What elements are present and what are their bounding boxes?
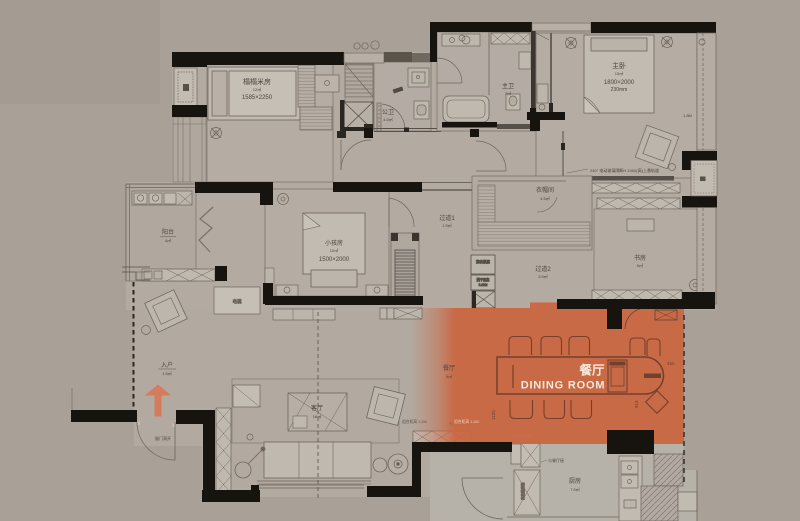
svg-text:烘干机高: 烘干机高 bbox=[477, 277, 490, 282]
svg-text:餐厅: 餐厅 bbox=[578, 363, 605, 378]
svg-text:厨房: 厨房 bbox=[569, 477, 581, 485]
svg-text:450: 450 bbox=[667, 361, 675, 366]
svg-text:高柜蒸烤箱: 高柜蒸烤箱 bbox=[520, 482, 525, 500]
svg-text:餐厅: 餐厅 bbox=[443, 364, 455, 372]
svg-text:过道2: 过道2 bbox=[535, 265, 551, 273]
svg-text:组合柜高 1.2M: 组合柜高 1.2M bbox=[402, 419, 427, 424]
svg-text:1800×2000: 1800×2000 bbox=[604, 80, 635, 86]
svg-text:10㎡: 10㎡ bbox=[330, 247, 338, 253]
svg-text:4.5㎡: 4.5㎡ bbox=[540, 195, 550, 201]
svg-text:公卫: 公卫 bbox=[382, 109, 394, 116]
svg-text:榻榻米房: 榻榻米房 bbox=[243, 77, 271, 86]
svg-text:主卧: 主卧 bbox=[612, 61, 626, 70]
svg-text:组合柜高 1.2M: 组合柜高 1.2M bbox=[454, 419, 479, 424]
svg-text:入户: 入户 bbox=[161, 361, 173, 369]
svg-text:15㎡: 15㎡ bbox=[615, 70, 623, 76]
svg-text:1.5㎡: 1.5㎡ bbox=[442, 222, 452, 228]
svg-text:7㎡: 7㎡ bbox=[505, 90, 511, 96]
svg-text:6㎡: 6㎡ bbox=[637, 262, 643, 268]
svg-text:小孩房: 小孩房 bbox=[325, 239, 343, 247]
svg-text:16㎡: 16㎡ bbox=[313, 413, 321, 419]
svg-text:与餐厅接: 与餐厅接 bbox=[548, 457, 564, 463]
svg-text:913: 913 bbox=[634, 400, 639, 408]
svg-text:主卫: 主卫 bbox=[502, 82, 514, 90]
svg-text:衣帽间: 衣帽间 bbox=[536, 186, 554, 194]
svg-text:7.5㎡: 7.5㎡ bbox=[570, 486, 580, 492]
svg-text:1.5㎡: 1.5㎡ bbox=[162, 370, 172, 376]
svg-text:DINING ROOM: DINING ROOM bbox=[521, 380, 606, 392]
svg-text:9㎡: 9㎡ bbox=[446, 373, 452, 379]
svg-text:1.8M: 1.8M bbox=[683, 113, 692, 118]
svg-text:过道1: 过道1 bbox=[439, 214, 455, 222]
svg-text:洗衣机高: 洗衣机高 bbox=[476, 259, 490, 264]
svg-text:230mm: 230mm bbox=[611, 87, 628, 93]
svg-text:3.5㎡: 3.5㎡ bbox=[538, 273, 548, 279]
svg-text:12㎡: 12㎡ bbox=[253, 86, 261, 92]
svg-text:1585×2250: 1585×2250 bbox=[242, 95, 273, 101]
svg-text:1120: 1120 bbox=[491, 410, 496, 420]
svg-text:副门洞开: 副门洞开 bbox=[155, 435, 171, 441]
svg-text:书房: 书房 bbox=[634, 254, 646, 262]
svg-text:0.32M: 0.32M bbox=[479, 283, 488, 287]
svg-text:电视: 电视 bbox=[233, 298, 242, 305]
svg-text:4㎡: 4㎡ bbox=[165, 237, 171, 243]
svg-text:阳台: 阳台 bbox=[162, 228, 174, 236]
svg-text:客厅: 客厅 bbox=[311, 404, 323, 412]
svg-text:240° 电动玻璃隔断H 2400(高)上悬轨道: 240° 电动玻璃隔断H 2400(高)上悬轨道 bbox=[590, 167, 659, 173]
svg-text:4.5㎡: 4.5㎡ bbox=[383, 116, 393, 122]
svg-text:1500×2000: 1500×2000 bbox=[319, 257, 350, 263]
